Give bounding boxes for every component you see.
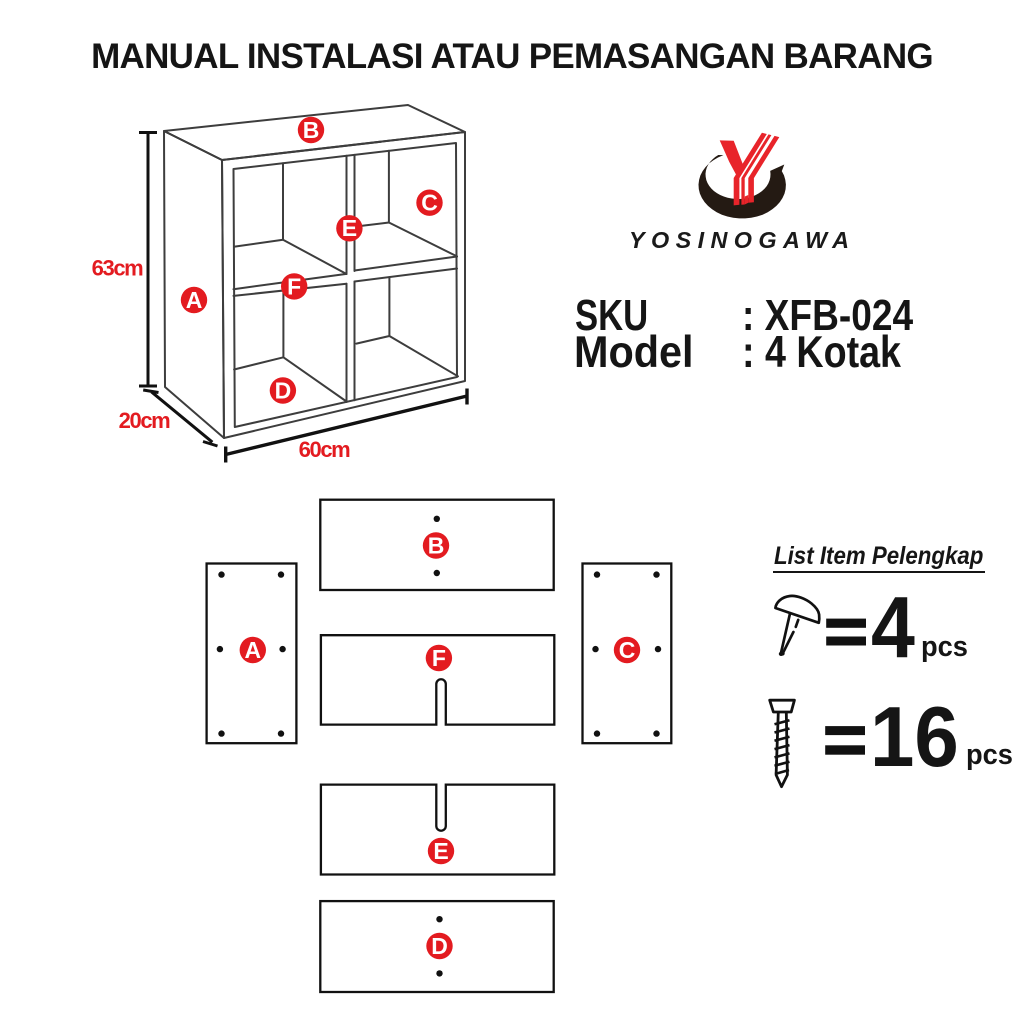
svg-text:60cm: 60cm bbox=[299, 437, 351, 462]
svg-text:C: C bbox=[619, 637, 636, 663]
svg-text:A: A bbox=[244, 637, 261, 663]
svg-text:B: B bbox=[428, 532, 445, 558]
svg-text:20cm: 20cm bbox=[119, 408, 171, 433]
svg-text:C: C bbox=[421, 190, 438, 216]
svg-text:D: D bbox=[275, 377, 292, 403]
svg-text:D: D bbox=[431, 933, 448, 959]
svg-text:E: E bbox=[342, 215, 357, 241]
svg-text:A: A bbox=[186, 287, 203, 313]
svg-text:F: F bbox=[287, 273, 301, 299]
svg-text:F: F bbox=[432, 645, 446, 671]
svg-text:E: E bbox=[433, 838, 448, 864]
svg-text:B: B bbox=[303, 117, 320, 143]
svg-text:63cm: 63cm bbox=[92, 256, 144, 281]
